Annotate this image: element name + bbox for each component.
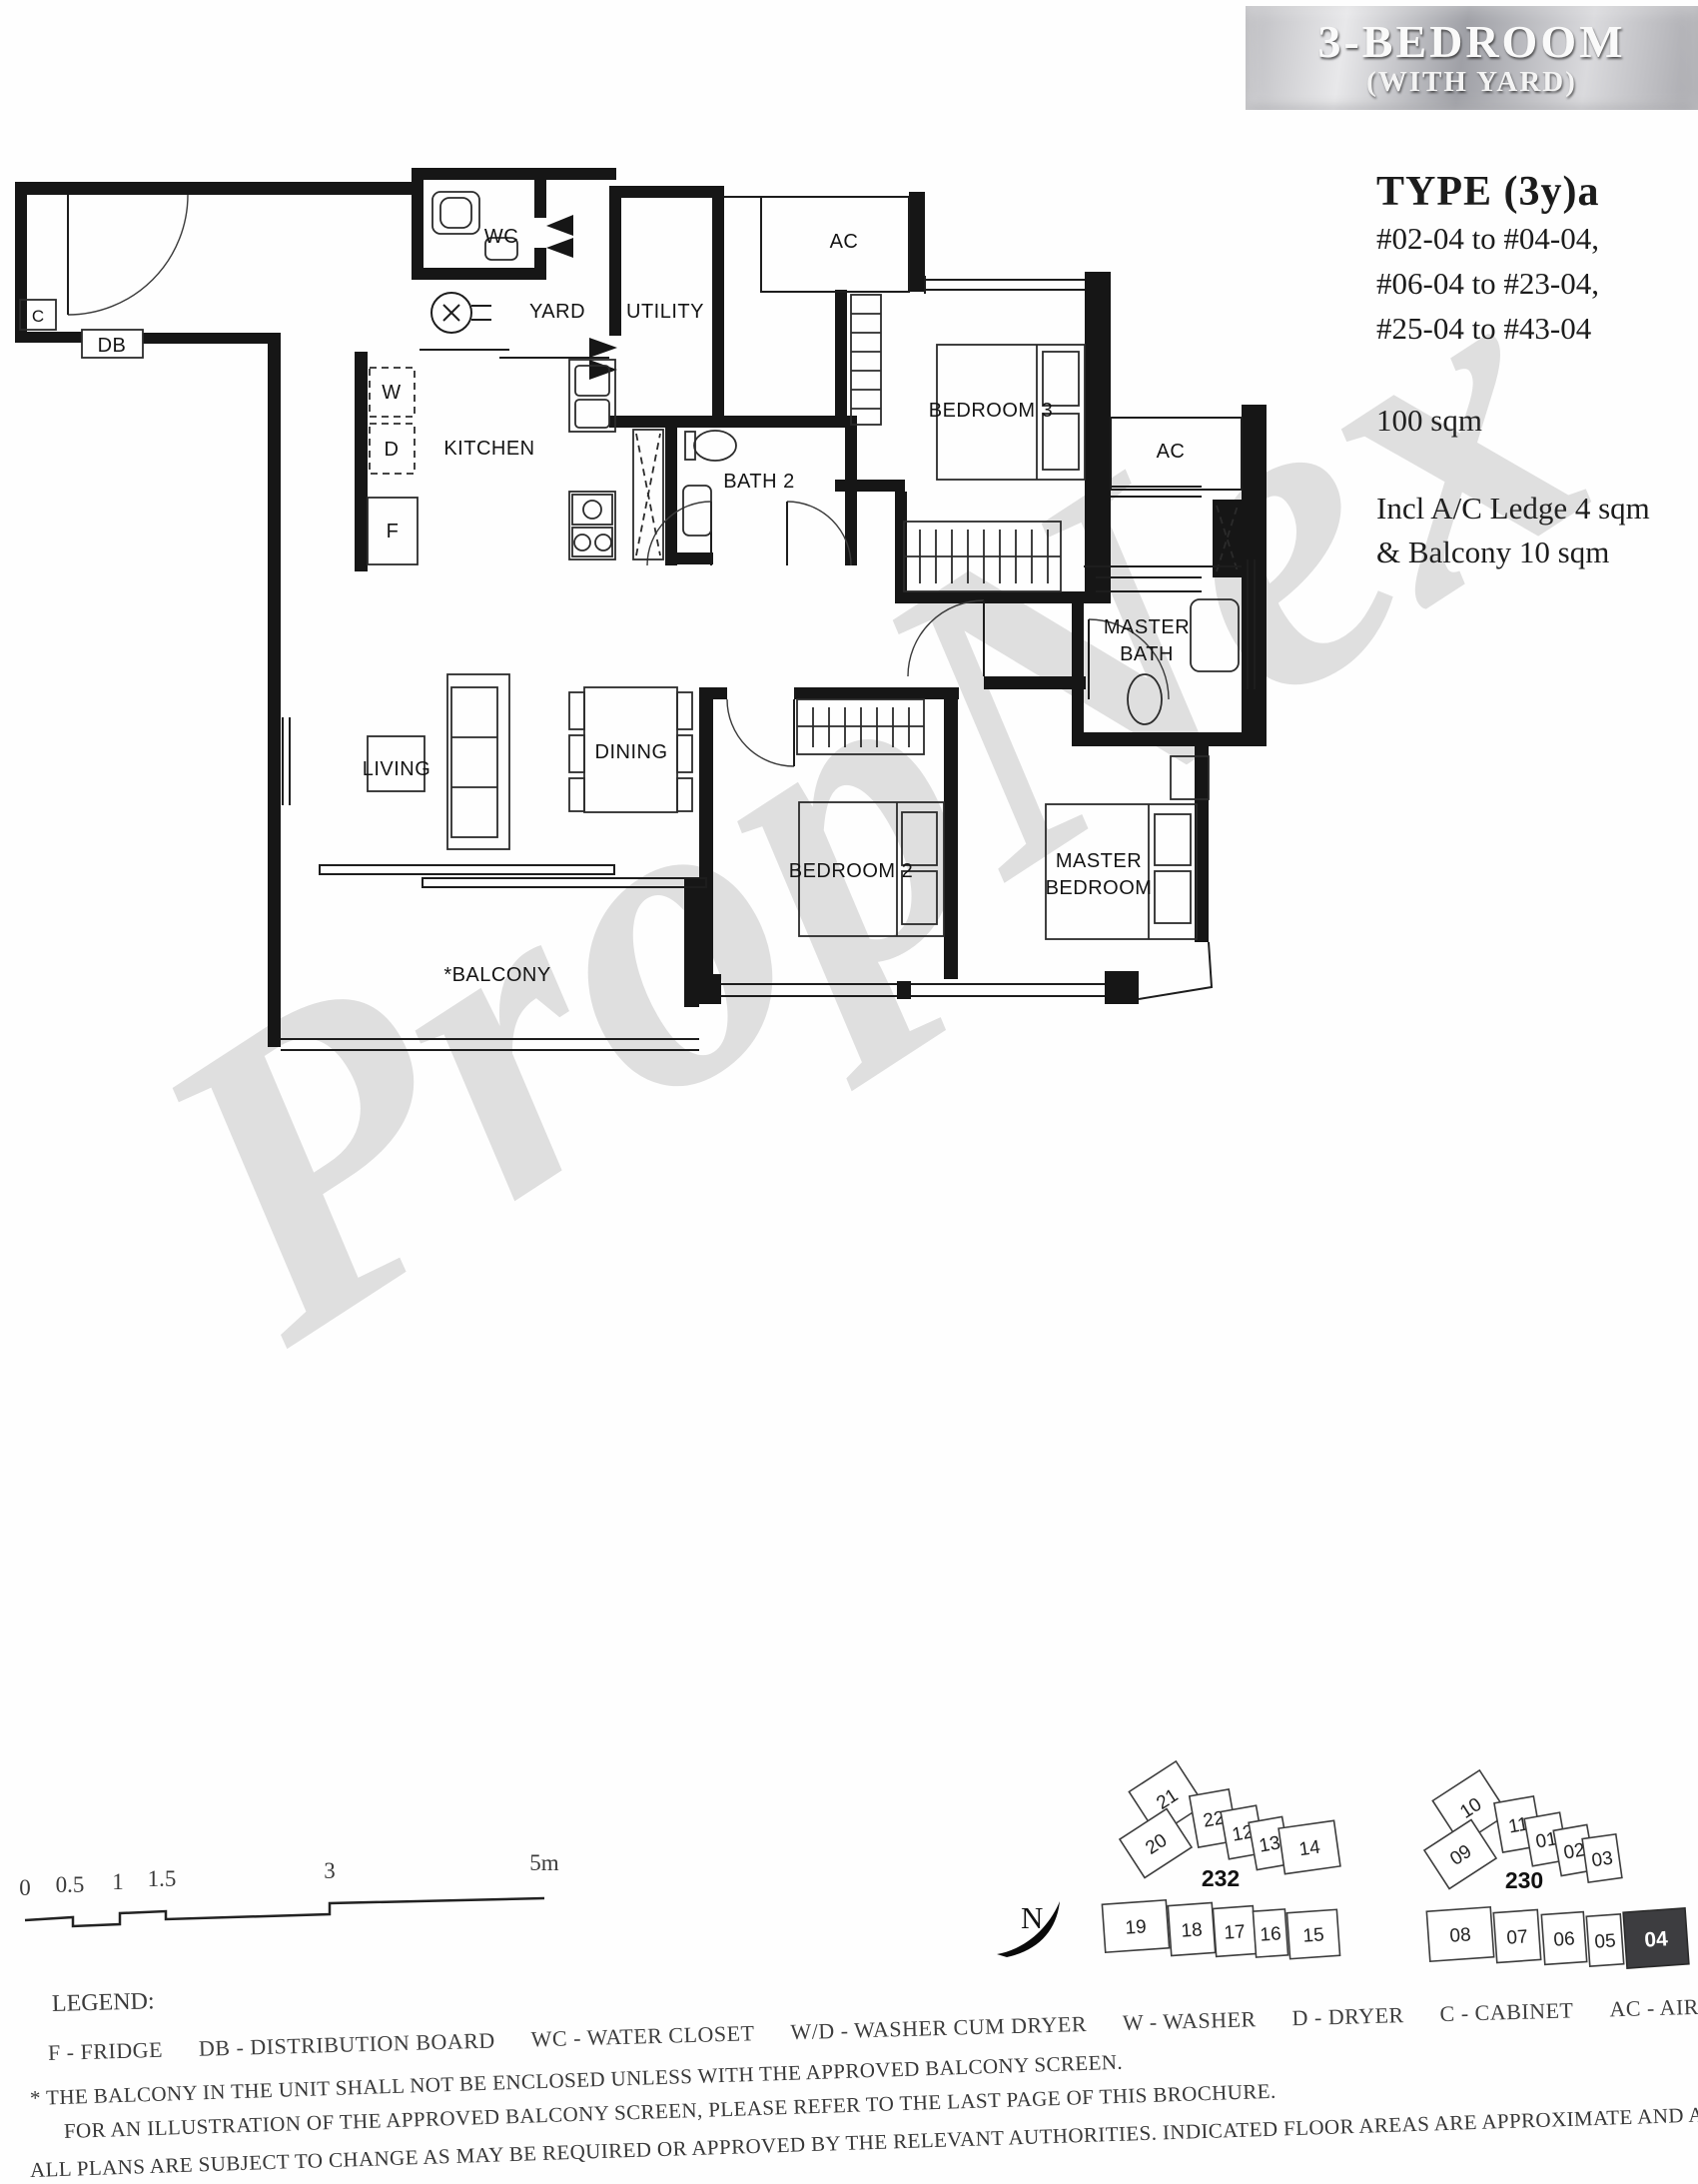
label-washer: W bbox=[382, 382, 401, 404]
label-living: LIVING bbox=[363, 758, 431, 780]
unit-inclusion-line: Incl A/C Ledge 4 sqm bbox=[1376, 487, 1686, 531]
key-unit: 14 bbox=[1297, 1837, 1321, 1861]
north-arrow-icon: N bbox=[997, 1900, 1060, 1957]
key-unit: 19 bbox=[1125, 1916, 1148, 1938]
bath2-sink-icon bbox=[683, 486, 711, 536]
key-unit: 17 bbox=[1224, 1921, 1247, 1943]
legend-label: LEGEND: bbox=[52, 1988, 155, 2018]
legend-item: F - FRIDGE bbox=[48, 2037, 164, 2066]
unit-stack-range: #02-04 to #04-04, bbox=[1376, 216, 1686, 261]
shower-icon bbox=[1191, 599, 1239, 671]
legend-item: AC - AIRCON LEDGE bbox=[1609, 1990, 1698, 2022]
key-unit: 05 bbox=[1594, 1930, 1617, 1952]
key-unit: 06 bbox=[1553, 1928, 1576, 1950]
key-plan-230: 10 09 11 01 02 03 230 08 07 06 05 04 bbox=[1424, 1770, 1689, 1968]
label-wc: WC bbox=[484, 226, 518, 248]
scale-tick: 1 bbox=[112, 1869, 124, 1894]
label-master-bedroom: BEDROOM bbox=[1046, 877, 1153, 899]
key-unit-highlighted: 04 bbox=[1644, 1927, 1669, 1952]
key-unit: 03 bbox=[1590, 1848, 1614, 1872]
label-utility: UTILITY bbox=[626, 301, 704, 323]
key-unit: 16 bbox=[1260, 1923, 1282, 1945]
unit-inclusion-line: & Balcony 10 sqm bbox=[1376, 531, 1686, 574]
unit-type-label: TYPE (3y)a bbox=[1376, 168, 1686, 216]
master-toilet-icon bbox=[1128, 674, 1162, 724]
key-plan-232: 21 20 22 12 13 14 232 19 18 17 16 15 bbox=[1102, 1761, 1340, 1959]
legend-item: DB - DISTRIBUTION BOARD bbox=[199, 2027, 496, 2061]
legend-item: W - WASHER bbox=[1123, 2006, 1257, 2036]
key-block-label: 232 bbox=[1202, 1865, 1240, 1891]
scale-tick: 3 bbox=[324, 1858, 336, 1883]
bottom-strip: 0 0.5 1 1.5 3 5m N 21 20 22 12 13 14 232… bbox=[0, 1728, 1698, 1988]
north-label: N bbox=[1021, 1900, 1043, 1935]
label-fridge: F bbox=[387, 521, 400, 543]
sofa-icon bbox=[447, 674, 509, 849]
key-unit: 13 bbox=[1258, 1832, 1281, 1856]
legend-items: F - FRIDGE DB - DISTRIBUTION BOARD WC - … bbox=[48, 1995, 1666, 2066]
label-master-bath: MASTER bbox=[1104, 616, 1190, 638]
floor-plan: WC YARD UTILITY KITCHEN BATH 2 BEDROOM 3… bbox=[0, 125, 1298, 1134]
scale-bar: 0 0.5 1 1.5 3 5m bbox=[19, 1850, 559, 1926]
wc-door-icon bbox=[546, 215, 573, 236]
unit-stack-range: #06-04 to #23-04, bbox=[1376, 261, 1686, 306]
utility-door-icon bbox=[589, 360, 617, 380]
legend-item: D - DRYER bbox=[1291, 2002, 1404, 2031]
scale-tick: 0 bbox=[19, 1875, 31, 1900]
key-unit: 07 bbox=[1506, 1926, 1529, 1948]
utility-door-icon bbox=[589, 338, 617, 358]
label-master-bath: BATH bbox=[1120, 643, 1174, 665]
label-ac-top: AC bbox=[830, 231, 859, 253]
unit-info: TYPE (3y)a #02-04 to #04-04, #06-04 to #… bbox=[1376, 168, 1686, 574]
key-unit: 15 bbox=[1302, 1924, 1325, 1946]
wc-door-icon bbox=[546, 238, 573, 258]
banner-subtitle: (WITH YARD) bbox=[1366, 66, 1577, 98]
scale-tick: 5m bbox=[529, 1850, 559, 1875]
label-kitchen: KITCHEN bbox=[443, 438, 534, 460]
label-yard: YARD bbox=[529, 301, 585, 323]
banner-title: 3-BEDROOM bbox=[1317, 18, 1625, 66]
legend-item: W/D - WASHER CUM DRYER bbox=[790, 2011, 1087, 2045]
label-bedroom2: BEDROOM 2 bbox=[789, 860, 914, 882]
bath2-toilet-icon bbox=[694, 431, 736, 461]
label-dining: DINING bbox=[595, 741, 668, 763]
label-db: DB bbox=[98, 335, 127, 357]
label-bedroom3: BEDROOM 3 bbox=[929, 400, 1054, 422]
legend-item: C - CABINET bbox=[1439, 1997, 1574, 2027]
label-master-bedroom: MASTER bbox=[1056, 850, 1142, 872]
walls bbox=[15, 168, 1267, 1047]
label-ac-right: AC bbox=[1157, 441, 1186, 463]
legend-item: WC - WATER CLOSET bbox=[530, 2020, 754, 2052]
scale-tick: 1.5 bbox=[148, 1866, 177, 1891]
scale-tick: 0.5 bbox=[56, 1872, 85, 1897]
label-bath2: BATH 2 bbox=[723, 471, 795, 493]
key-block-label: 230 bbox=[1505, 1867, 1543, 1893]
key-unit: 08 bbox=[1449, 1924, 1472, 1946]
unit-inclusions: Incl A/C Ledge 4 sqm & Balcony 10 sqm bbox=[1376, 487, 1686, 574]
label-balcony: *BALCONY bbox=[443, 964, 550, 986]
page-banner: 3-BEDROOM (WITH YARD) bbox=[1246, 6, 1698, 110]
key-unit: 18 bbox=[1181, 1919, 1204, 1941]
unit-area: 100 sqm bbox=[1376, 403, 1686, 439]
label-dryer: D bbox=[385, 439, 400, 461]
label-cabinet: C bbox=[32, 307, 44, 326]
unit-stack-range: #25-04 to #43-04 bbox=[1376, 306, 1686, 351]
